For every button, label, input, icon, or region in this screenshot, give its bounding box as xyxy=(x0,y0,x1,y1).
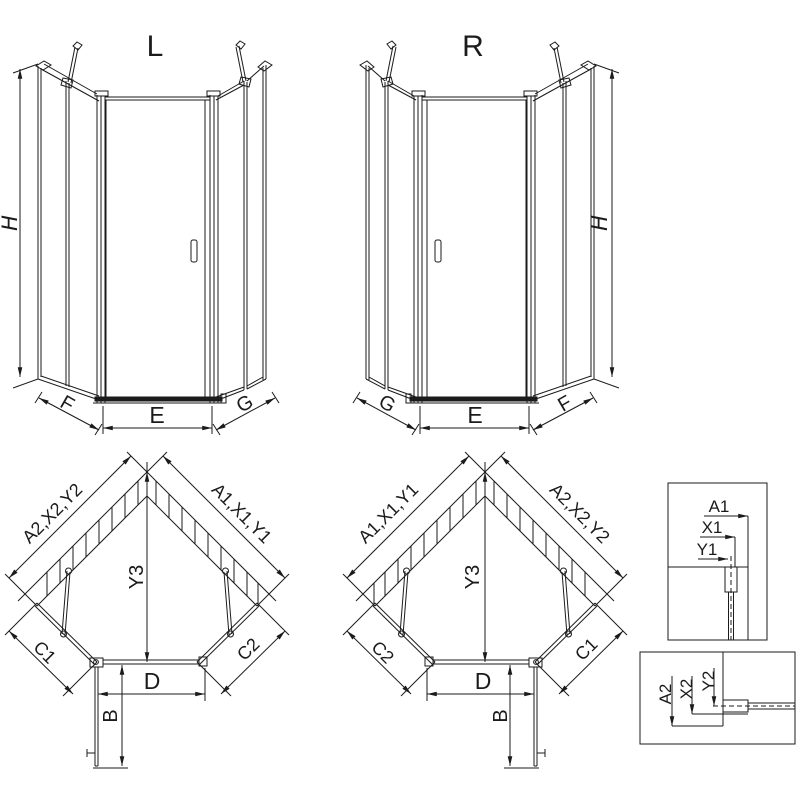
door-handle xyxy=(191,240,197,262)
front-right-height-label: H xyxy=(588,215,612,231)
plan-right-c2-label: C2 xyxy=(367,637,397,667)
plan-left-y3-label: Y3 xyxy=(126,565,148,589)
front-right-e-label: E xyxy=(467,402,482,428)
plan-right-y3-label: Y3 xyxy=(462,565,484,589)
labels: L H F E G R H G E F A2,X2,Y2 A1,X1,Y1 Y3… xyxy=(0,30,729,723)
plan-left-b-label: B xyxy=(100,709,122,722)
threshold-sill xyxy=(95,397,222,401)
plan-left-c2-label: C2 xyxy=(233,634,263,664)
front-left-height-label: H xyxy=(0,215,22,231)
front-left-g-label: G xyxy=(233,391,257,418)
detail-a2-label: A2 xyxy=(656,684,675,705)
plan-left-d-label: D xyxy=(144,668,161,694)
plan-right-b-label: B xyxy=(490,709,512,722)
detail-a1-label: A1 xyxy=(709,497,730,516)
front-left-e-label: E xyxy=(149,402,164,428)
detail-y1-label: Y1 xyxy=(697,540,718,559)
front-left-title: L xyxy=(147,30,164,63)
front-right-f-label: F xyxy=(554,391,576,416)
front-view-structure xyxy=(13,41,279,435)
detail-x2-label: X2 xyxy=(677,679,696,700)
door-glass-panel xyxy=(106,100,205,397)
wall-profile xyxy=(723,700,748,712)
detail-y2-label: Y2 xyxy=(699,671,718,692)
open-door-plan xyxy=(87,667,98,766)
front-right-title: R xyxy=(462,30,484,63)
plan-right-c1-label: C1 xyxy=(571,634,601,664)
plan-right-d-label: D xyxy=(475,668,492,694)
detail-x1-label: X1 xyxy=(702,518,723,537)
plan-left-wall-right-label: A1,X1,Y1 xyxy=(208,479,276,547)
diagram-canvas: L H F E G R H G E F A2,X2,Y2 A1,X1,Y1 Y3… xyxy=(0,0,800,800)
plan-left-c1-label: C1 xyxy=(29,637,59,667)
plan-right-wall-right-label: A2,X2,Y2 xyxy=(546,479,614,547)
plan-view-structure xyxy=(5,452,289,768)
support-bar xyxy=(61,42,82,88)
shower-enclosure-technical-drawing: L H F E G R H G E F A2,X2,Y2 A1,X1,Y1 Y3… xyxy=(0,0,800,800)
front-right-g-label: G xyxy=(375,391,399,418)
plan-left-wall-left-label: A2,X2,Y2 xyxy=(18,479,86,547)
front-left-f-label: F xyxy=(56,391,78,416)
